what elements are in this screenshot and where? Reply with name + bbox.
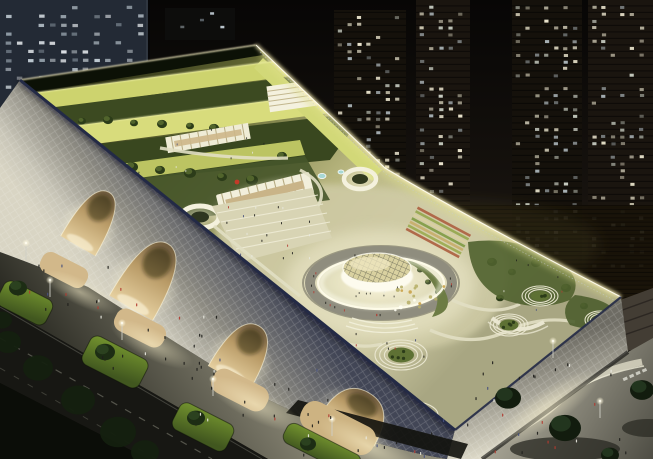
mid-background-building	[165, 8, 235, 40]
roof-pond	[318, 173, 326, 178]
red-sculpture	[235, 180, 240, 185]
roof-pond	[338, 170, 344, 174]
architectural-night-rendering	[0, 0, 653, 459]
ring-pavilion-a	[340, 166, 380, 192]
